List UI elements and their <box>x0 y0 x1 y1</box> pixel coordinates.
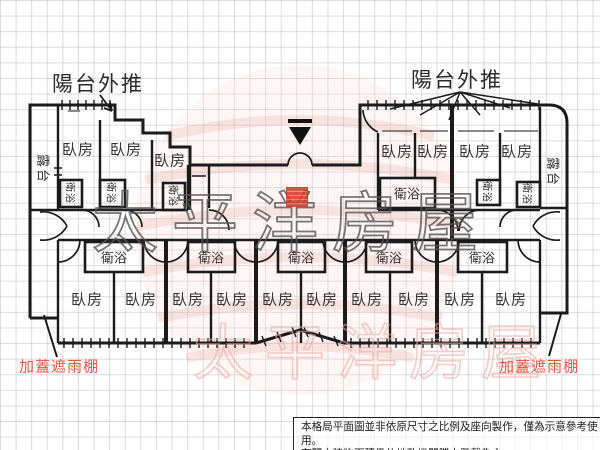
rain-shelter-label-left: 加蓋遮雨棚 <box>19 356 99 377</box>
bedroom-label: 臥房 <box>381 141 413 162</box>
bathroom-label: 衛浴 <box>376 248 402 267</box>
bathroom-label: 衛浴 <box>64 182 79 204</box>
bathroom-label: 衛浴 <box>469 248 495 267</box>
rain-shelter-label-right: 加蓋遮雨棚 <box>499 356 579 377</box>
bathroom-label: 衛浴 <box>198 248 224 267</box>
bedroom-label: 臥房 <box>306 289 338 310</box>
bedroom-label: 臥房 <box>172 289 204 310</box>
bathroom-label: 衛浴 <box>105 182 120 204</box>
bedroom-label: 臥房 <box>444 289 476 310</box>
disclaimer-box: 本格局平面圖並非依原尺寸之比例及座向製作，僅為示意參考使用。 有關之建物面積仍依… <box>293 417 600 450</box>
bedroom-label: 臥房 <box>62 139 94 160</box>
bedroom-label: 臥房 <box>154 150 186 171</box>
bedroom-label: 臥房 <box>125 289 157 310</box>
bedroom-label: 臥房 <box>398 289 430 310</box>
bedroom-label: 臥房 <box>351 289 383 310</box>
bathroom-label: 衛浴 <box>288 248 314 267</box>
disclaimer-line-1: 本格局平面圖並非依原尺寸之比例及座向製作，僅為示意參考使用。 <box>301 421 600 448</box>
terrace-label-left: 露台 <box>35 154 54 184</box>
bathroom-label: 衛浴 <box>167 185 182 207</box>
bedroom-label: 臥房 <box>110 139 142 160</box>
bedroom-label: 臥房 <box>417 141 449 162</box>
bedroom-label: 臥房 <box>501 141 533 162</box>
balcony-push-label-left: 陽台外推 <box>52 68 144 98</box>
terrace-label-right: 露台 <box>545 157 564 187</box>
entrance-marker-icon <box>288 119 312 145</box>
floorplan-image: 太平洋房屋 太平洋房屋 陽台外推 陽台外推 露台 露台 加蓋遮雨棚 加蓋遮雨棚 … <box>0 0 600 450</box>
bathroom-label: 衛浴 <box>101 248 127 267</box>
balcony-push-label-right: 陽台外推 <box>411 64 503 94</box>
watermark-seal <box>287 188 307 206</box>
bathroom-label: 衛浴 <box>481 181 496 203</box>
bathroom-label: 衛浴 <box>394 184 420 203</box>
brand-watermark-pink: 太平洋房屋 <box>193 320 553 387</box>
bedroom-label: 臥房 <box>216 289 248 310</box>
bedroom-label: 臥房 <box>71 289 103 310</box>
bedroom-label: 臥房 <box>262 289 294 310</box>
bathroom-label: 衛浴 <box>521 183 536 205</box>
bedroom-label: 臥房 <box>495 289 527 310</box>
bedroom-label: 臥房 <box>459 141 491 162</box>
